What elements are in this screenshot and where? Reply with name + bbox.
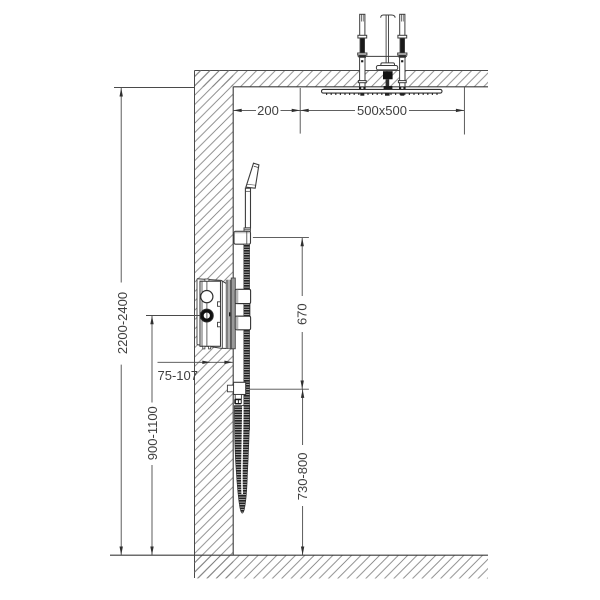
svg-text:900-1100: 900-1100	[145, 406, 160, 460]
svg-text:730-800: 730-800	[295, 453, 310, 501]
svg-text:670: 670	[294, 303, 309, 325]
svg-text:500x500: 500x500	[357, 103, 407, 118]
svg-text:2200-2400: 2200-2400	[115, 292, 130, 354]
svg-text:75-107: 75-107	[158, 368, 198, 383]
svg-text:200: 200	[257, 103, 279, 118]
